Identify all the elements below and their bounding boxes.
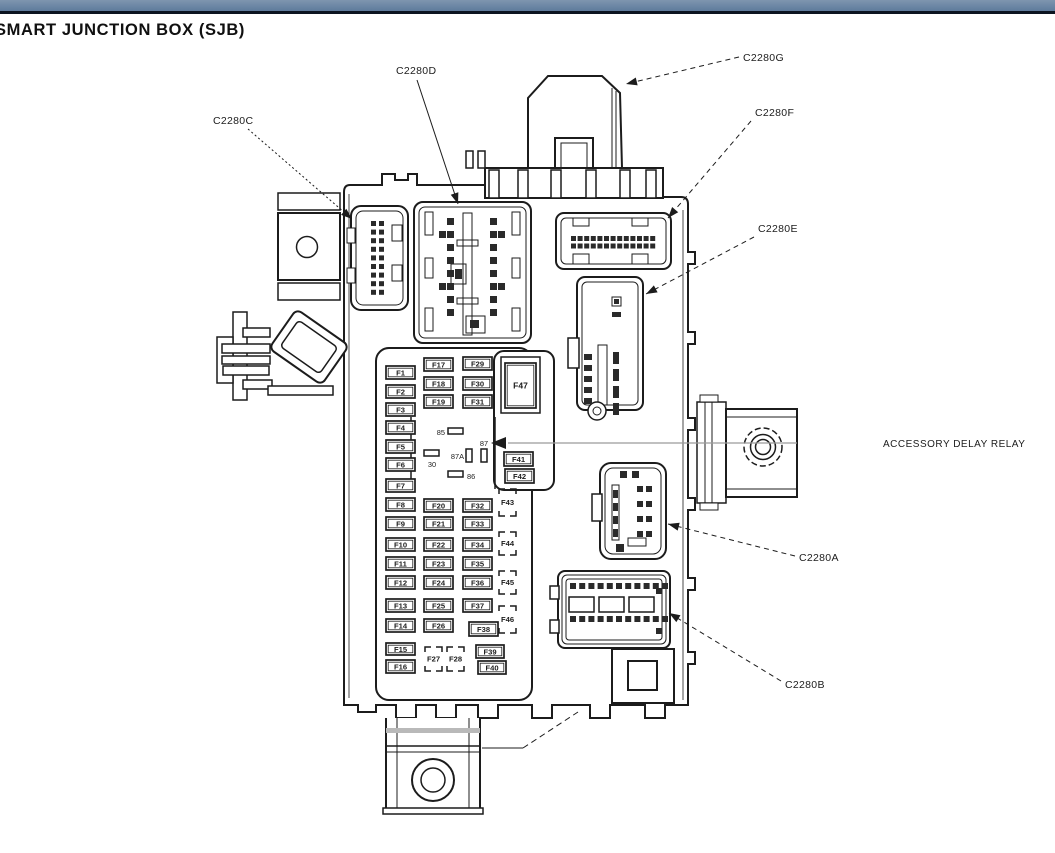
fuse-f26: F26 [424,619,453,632]
connector-c2280e-drawing [568,277,643,420]
fuse-f39: F39 [476,645,504,658]
svg-text:F32: F32 [471,501,484,510]
svg-text:F6: F6 [396,460,405,469]
svg-text:85: 85 [437,428,445,437]
callout-c2280a: C2280A [668,523,839,564]
sjb-diagram: F1F2F3F4F5F6F7F8F9F10F11F12F13F14F15F16F… [0,0,1055,853]
fuse-f18: F18 [424,377,453,390]
svg-text:F28: F28 [449,655,462,664]
svg-text:F1: F1 [396,368,406,377]
fuse-f41: F41 [504,452,533,466]
fuse-f32: F32 [463,499,492,512]
connector-c2280c-drawing [347,206,408,310]
fuse-f2: F2 [386,385,415,398]
svg-text:F43: F43 [501,498,514,507]
fuse-f34: F34 [463,538,492,551]
fuse-f22: F22 [424,538,453,551]
connector-label-c2280a: C2280A [799,552,839,564]
fuse-f35: F35 [463,557,492,570]
fuse-f3: F3 [386,403,415,416]
svg-text:F5: F5 [396,442,406,451]
svg-text:F14: F14 [394,621,408,630]
fuse-f37: F37 [463,599,492,612]
fuse-f1: F1 [386,366,415,379]
svg-text:F42: F42 [513,472,526,481]
connector-c2280a-drawing [592,463,666,559]
svg-text:F45: F45 [501,578,515,587]
svg-text:F10: F10 [394,540,407,549]
connector-c2280d-drawing [414,202,531,343]
svg-text:F40: F40 [485,663,498,672]
fuse-f20: F20 [424,499,453,512]
svg-text:F11: F11 [394,559,407,568]
svg-text:86: 86 [467,472,475,481]
svg-text:F46: F46 [501,615,514,624]
fuse-f25: F25 [424,599,453,612]
svg-text:F34: F34 [471,540,485,549]
fuse-f11: F11 [386,557,415,570]
svg-text:F38: F38 [477,625,490,634]
svg-text:F3: F3 [396,405,405,414]
svg-text:F25: F25 [432,601,446,610]
svg-text:F47: F47 [513,380,528,390]
fuse-f7: F7 [386,479,415,492]
fuse-f29: F29 [463,357,492,370]
fuse-f16: F16 [386,660,415,673]
accessory-delay-relay-label: ACCESSORY DELAY RELAY [883,439,1025,450]
relay-pin-87: 87 [480,439,488,462]
svg-text:F41: F41 [512,455,526,464]
svg-text:F15: F15 [394,645,408,654]
svg-text:F21: F21 [432,519,446,528]
connector-c2280g-drawing [466,76,663,198]
svg-text:F13: F13 [394,601,407,610]
svg-text:F30: F30 [471,379,484,388]
svg-text:F33: F33 [471,519,484,528]
svg-text:30: 30 [428,460,436,469]
svg-text:F27: F27 [427,655,440,664]
svg-text:87: 87 [480,439,488,448]
connector-label-c2280c: C2280C [213,115,253,127]
fuse-f14: F14 [386,619,415,632]
fuse-f40: F40 [478,661,506,674]
connector-label-c2280f: C2280F [755,107,794,119]
svg-text:F44: F44 [501,539,515,548]
fuse-f17: F17 [424,358,453,371]
bottom-mount-bracket [383,712,578,814]
svg-text:F7: F7 [396,481,405,490]
fuse-f5: F5 [386,440,415,453]
connector-c2280f-drawing [556,213,671,269]
fuse-f36: F36 [463,576,492,589]
svg-text:F18: F18 [432,379,445,388]
svg-text:F17: F17 [432,360,445,369]
fuse-f6: F6 [386,458,415,471]
bottom-right-square-mount [612,649,674,703]
left-arm [217,309,349,400]
svg-text:87A: 87A [451,452,464,461]
svg-text:F39: F39 [483,647,496,656]
svg-text:F22: F22 [432,540,445,549]
page: SMART JUNCTION BOX (SJB) [0,0,1055,853]
fuse-f9: F9 [386,517,415,530]
fuse-f15: F15 [386,643,415,655]
svg-text:F4: F4 [396,423,406,432]
left-mount-tab [278,193,340,300]
svg-text:F2: F2 [396,387,405,396]
callout-c2280g: C2280G [626,52,784,85]
fuse-f4: F4 [386,421,415,434]
svg-text:F9: F9 [396,519,405,528]
fuse-f33: F33 [463,517,492,530]
svg-text:F24: F24 [432,578,446,587]
svg-text:F37: F37 [471,601,484,610]
svg-text:F20: F20 [432,501,445,510]
svg-text:F29: F29 [471,359,484,368]
svg-text:F23: F23 [432,559,445,568]
fuse-f30: F30 [463,377,492,390]
connector-label-c2280d: C2280D [396,65,436,77]
fuse-f42: F42 [505,469,534,483]
right-mount-boss [697,395,797,510]
svg-text:F8: F8 [396,500,405,509]
fuse-f31: F31 [463,395,492,408]
connector-label-c2280b: C2280B [785,679,825,691]
fuse-f12: F12 [386,576,415,589]
fuse-f10: F10 [386,538,415,551]
fuse-f38: F38 [469,622,498,636]
fuse-f21: F21 [424,517,453,530]
svg-text:F36: F36 [471,578,484,587]
svg-text:F12: F12 [394,578,407,587]
fuse-f19: F19 [424,395,453,408]
connector-label-c2280g: C2280G [743,52,784,64]
fuse-f47: F47 [505,363,536,408]
svg-text:F16: F16 [394,662,407,671]
fuse-f13: F13 [386,599,415,612]
svg-text:F26: F26 [432,621,445,630]
connector-c2280b-drawing [550,571,670,648]
connector-label-c2280e: C2280E [758,223,798,235]
svg-text:F35: F35 [471,559,485,568]
fuse-f8: F8 [386,498,415,511]
svg-text:F31: F31 [471,397,485,406]
fuse-f24: F24 [424,576,453,589]
fuse-f23: F23 [424,557,453,570]
svg-text:F19: F19 [432,397,445,406]
